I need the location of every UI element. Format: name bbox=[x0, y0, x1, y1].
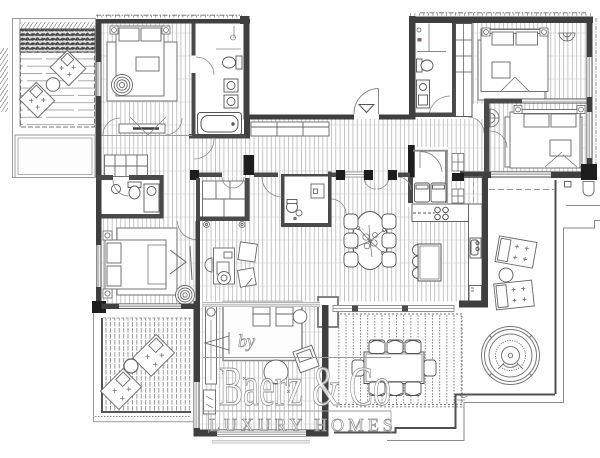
svg-text:LUXURY HOMES: LUXURY HOMES bbox=[209, 415, 397, 435]
svg-text:by: by bbox=[238, 331, 255, 351]
svg-text:Baerz & Co: Baerz & Co bbox=[219, 356, 391, 418]
